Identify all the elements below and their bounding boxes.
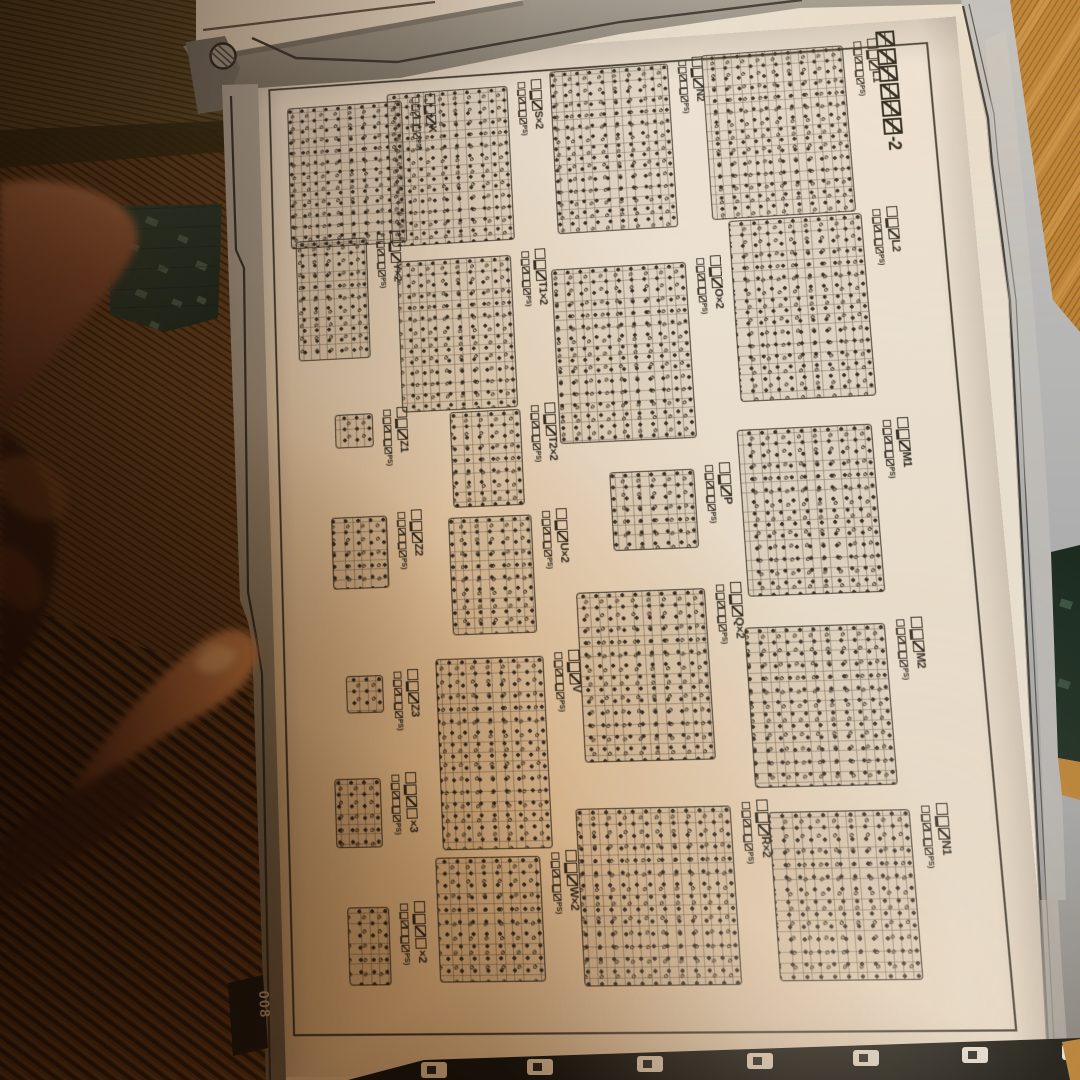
svg-text:008: 008 xyxy=(256,990,273,1019)
